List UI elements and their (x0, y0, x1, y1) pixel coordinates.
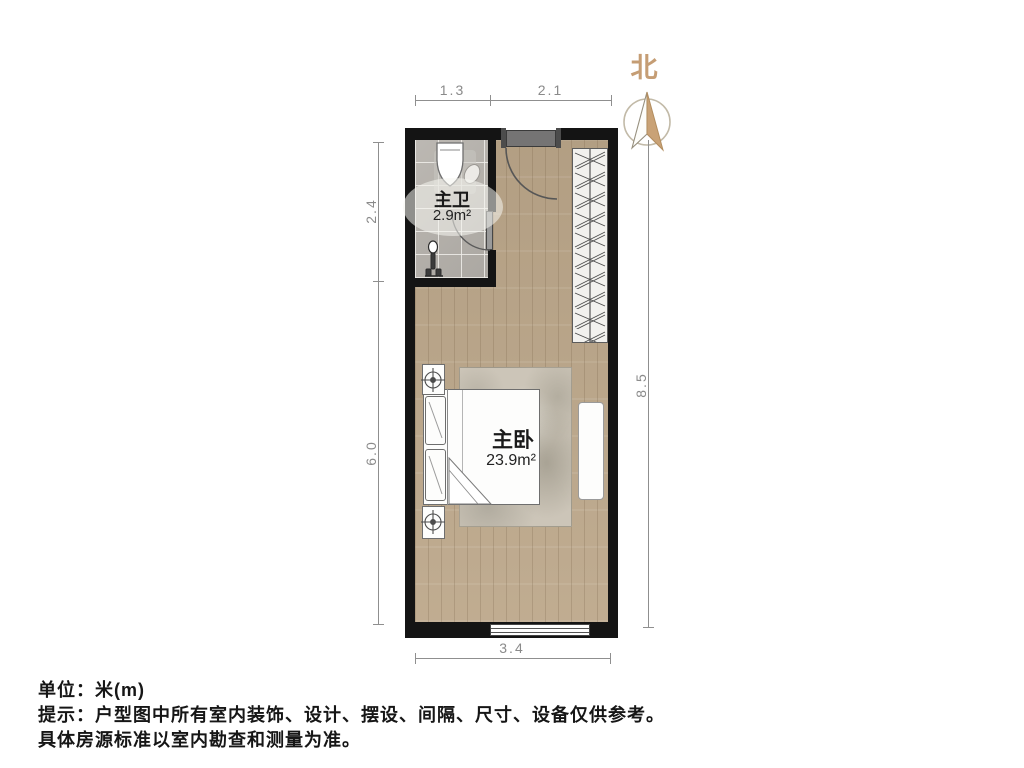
pillow-crease (429, 456, 442, 494)
dim-top-left: 1.3 (415, 82, 490, 98)
bedroom-area: 23.9m² (461, 452, 561, 470)
north-compass-icon (624, 92, 670, 150)
dim-right: 8.5 (627, 360, 655, 410)
dim-tick (373, 624, 384, 625)
footer-note-line: 具体房源标准以室内勘查和测量为准。 (38, 726, 361, 752)
dim-top-right: 2.1 (490, 82, 611, 98)
lamp-icon (421, 510, 445, 534)
dim-tick (610, 653, 611, 664)
bedroom-name: 主卧 (463, 424, 563, 454)
footer-unit-line: 单位：米(m) (38, 676, 145, 702)
dim-tick (373, 281, 384, 282)
dim-bottom: 3.4 (452, 640, 572, 656)
footer-tip-line: 提示：户型图中所有室内装饰、设计、摆设、间隔、尺寸、设备仅供参考。 (38, 701, 665, 727)
dim-tick (643, 627, 654, 628)
dim-line-top (415, 100, 612, 101)
dim-tick (373, 142, 384, 143)
lamp-icon (421, 368, 445, 392)
dim-line-bottom (415, 658, 611, 659)
bathroom-area: 2.9m² (407, 207, 497, 224)
dim-left-lower: 6.0 (357, 428, 385, 478)
dim-tick (415, 653, 416, 664)
pillow-crease (429, 402, 442, 438)
dim-left-upper: 2.4 (357, 186, 385, 236)
north-label: 北 (614, 46, 674, 85)
shower-icon (425, 241, 443, 276)
entry-door-arc-icon (506, 148, 557, 199)
dim-tick (611, 95, 612, 106)
